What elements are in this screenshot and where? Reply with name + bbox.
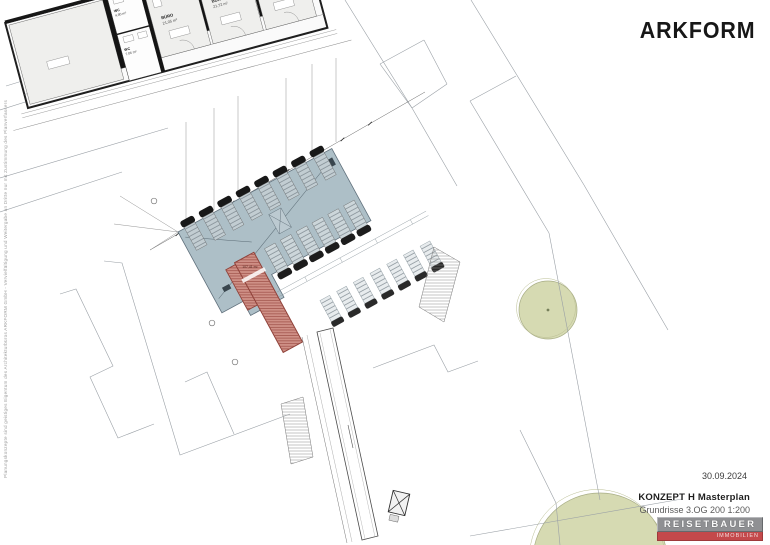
tree-right-icon: [517, 279, 578, 340]
copyright-disclaimer: Planungskonzepte sind geistiges Eigentum…: [3, 100, 8, 478]
arkform-logo: ARKFORM: [640, 17, 756, 44]
drawing-sheet: WC 4,80 m² WC 7,06 m² BÜRO 21,05 m² BÜRO…: [0, 0, 770, 545]
site-plan-drawing: WC 4,80 m² WC 7,06 m² BÜRO 21,05 m² BÜRO…: [0, 0, 770, 545]
stairs-south: [281, 397, 313, 464]
shaft-icon: [386, 490, 409, 523]
tree-bottom-icon: [530, 490, 668, 545]
detail-floorplan-fragment: WC 4,80 m² WC 7,06 m² BÜRO 21,05 m² BÜRO…: [0, 0, 351, 131]
main-building: 107,41 m²: [174, 116, 454, 371]
highlight-area-label: 107,41 m²: [242, 265, 258, 269]
stairs-east: [419, 247, 460, 322]
